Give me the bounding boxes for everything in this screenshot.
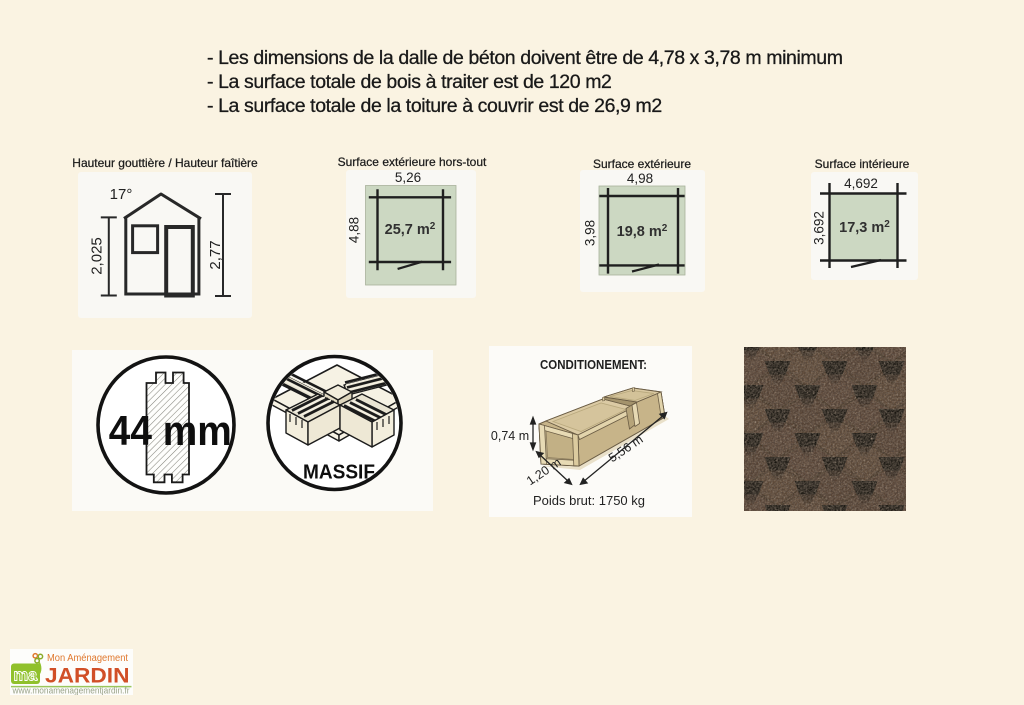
svg-text:5,26: 5,26 — [395, 170, 421, 185]
svg-text:0,74 m: 0,74 m — [491, 429, 529, 443]
svg-text:4,88: 4,88 — [347, 217, 362, 243]
svg-text:ma: ma — [14, 667, 39, 685]
svg-text:Poids brut: 1750 kg: Poids brut: 1750 kg — [533, 493, 645, 508]
svg-text:4,692: 4,692 — [844, 176, 878, 191]
svg-text:4,98: 4,98 — [627, 171, 653, 186]
svg-text:2,77: 2,77 — [207, 240, 224, 269]
svg-text:www.monamenagementjardin.fr: www.monamenagementjardin.fr — [12, 686, 130, 695]
svg-text:17°: 17° — [110, 186, 133, 203]
svg-text:CONDITIONEMENT:: CONDITIONEMENT: — [540, 358, 647, 372]
svg-text:JARDIN: JARDIN — [45, 664, 130, 688]
svg-text:19,8 m2: 19,8 m2 — [617, 223, 668, 240]
svg-text:17,3 m2: 17,3 m2 — [839, 219, 890, 236]
svg-text:2,025: 2,025 — [88, 237, 105, 275]
svg-text:44 mm: 44 mm — [109, 407, 232, 454]
svg-text:Mon Aménagement: Mon Aménagement — [47, 653, 128, 664]
svg-text:25,7 m2: 25,7 m2 — [385, 221, 436, 238]
svg-text:MASSIF: MASSIF — [303, 461, 375, 484]
svg-text:3,98: 3,98 — [583, 220, 598, 246]
svg-text:3,692: 3,692 — [812, 211, 827, 245]
